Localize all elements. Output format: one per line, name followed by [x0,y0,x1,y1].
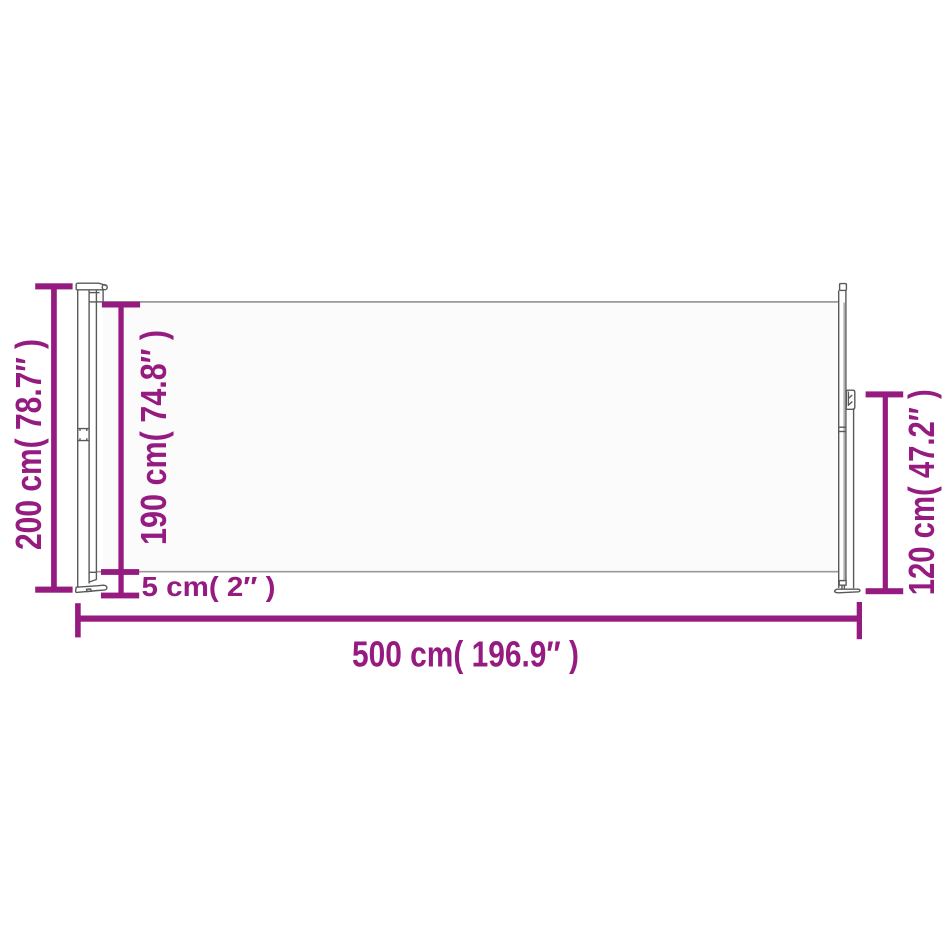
svg-text:190 cm( 74.8″ ): 190 cm( 74.8″ ) [133,330,174,545]
svg-text:5 cm( 2″ ): 5 cm( 2″ ) [142,571,276,602]
svg-text:120 cm( 47.2″ ): 120 cm( 47.2″ ) [901,389,942,595]
svg-text:500 cm( 196.9″ ): 500 cm( 196.9″ ) [352,633,579,674]
svg-text:200 cm( 78.7″ ): 200 cm( 78.7″ ) [8,339,49,550]
